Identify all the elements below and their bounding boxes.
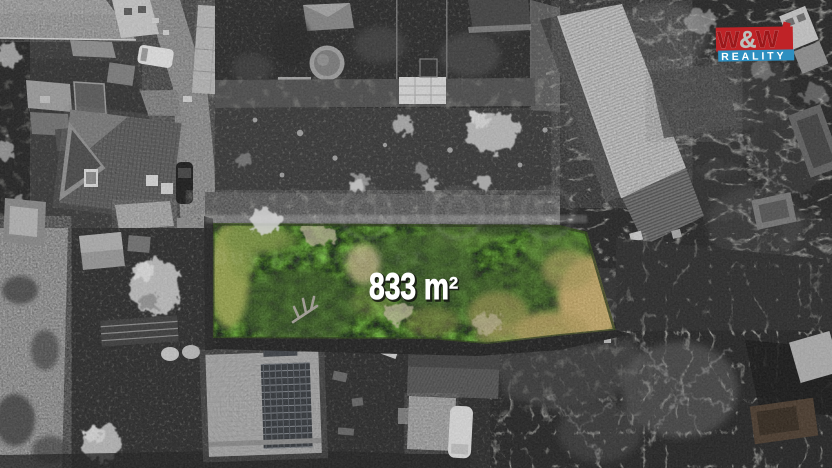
svg-text:REALITY: REALITY — [721, 50, 786, 63]
svg-text:2: 2 — [449, 275, 458, 293]
svg-text:833 m: 833 m — [369, 266, 449, 307]
